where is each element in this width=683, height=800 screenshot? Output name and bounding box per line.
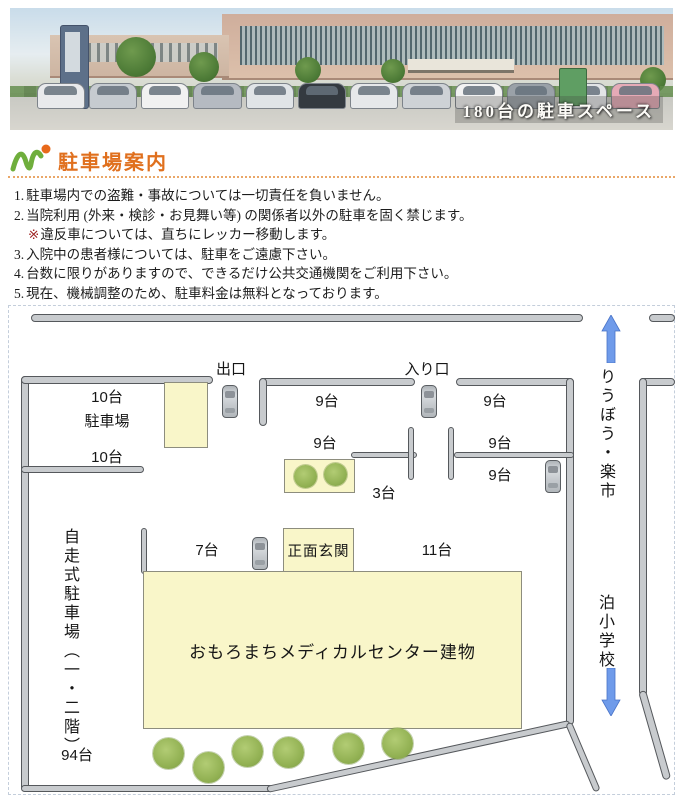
road-spur xyxy=(565,722,600,793)
notice-item: 5.現在、機械調整のため、駐車料金は無料となっております。 xyxy=(14,284,674,304)
count-label: 9台 xyxy=(291,390,363,411)
parking-lot-map: りうぼう・楽市 泊小学校 出口 入り口 10台 駐車場 10台 9台 9台 9台… xyxy=(8,305,675,795)
tree-icon xyxy=(324,463,347,486)
nw-count-top: 10台 xyxy=(71,386,143,407)
car-icon xyxy=(402,83,450,109)
count-label: 9台 xyxy=(289,432,361,453)
nw-lot-divider xyxy=(21,466,144,473)
building-box: おもろまちメディカルセンター建物 xyxy=(143,571,522,729)
nw-lot-label: 駐車場 xyxy=(64,410,150,431)
lot-right-boundary xyxy=(566,378,574,725)
car-icon xyxy=(193,83,241,109)
arrow-up-icon xyxy=(601,315,621,363)
count-label: 3台 xyxy=(359,482,409,503)
car-icon xyxy=(350,83,398,109)
main-entrance-box: 正面玄関 xyxy=(283,528,354,573)
section-header: 駐車場案内 xyxy=(8,138,675,178)
sprout-logo-icon xyxy=(10,142,54,174)
banner-caption: 180台の駐車スペース xyxy=(455,96,663,123)
self-parking-count: 94台 xyxy=(47,744,107,765)
tree-icon xyxy=(273,737,304,768)
page-title: 駐車場案内 xyxy=(58,146,168,175)
exit-label: 出口 xyxy=(209,358,253,379)
top-road-right-segment xyxy=(649,314,675,322)
warning-marker: ※ xyxy=(28,227,39,242)
car-icon xyxy=(252,537,268,570)
notice-item: 3.入院中の患者様については、駐車をご遠慮下さい。 xyxy=(14,245,674,265)
car-icon xyxy=(222,385,238,418)
parking-notice-list: 1.駐車場内での盗難・事故については一切責任を負いません。 2.当院利用 (外来… xyxy=(14,186,674,303)
top-road xyxy=(31,314,583,322)
car-icon xyxy=(545,460,561,493)
notice-item: 2.当院利用 (外来・検診・お見舞い等) の関係者以外の駐車を固く禁じます。 xyxy=(14,206,674,226)
count-label: 7台 xyxy=(177,539,237,560)
lot-left-boundary xyxy=(21,376,29,791)
nw-structure xyxy=(164,382,208,448)
parking-info-page: 180台の駐車スペース 駐車場案内 1.駐車場内での盗難・事故については一切責任… xyxy=(0,0,683,800)
tree-icon xyxy=(295,57,321,83)
planter-box xyxy=(284,459,355,493)
count-label: 11台 xyxy=(401,539,473,560)
tree-icon xyxy=(294,465,317,488)
count-label: 9台 xyxy=(464,464,536,485)
north-wall-left xyxy=(259,378,415,386)
lot-bottom-boundary xyxy=(21,785,273,792)
right-street-edge xyxy=(639,378,647,696)
count-label: 9台 xyxy=(459,390,531,411)
car-icon xyxy=(421,385,437,418)
tree-icon xyxy=(333,733,364,764)
tree-icon xyxy=(232,736,263,767)
nw-count-bottom: 10台 xyxy=(71,446,143,467)
south-destination-label: 泊小学校 xyxy=(592,594,616,670)
tree-icon xyxy=(381,59,405,83)
diagonal-road xyxy=(266,720,570,793)
tree-icon xyxy=(193,752,224,783)
north-destination-label: りうぼう・楽市 xyxy=(593,368,617,501)
notice-item: 1.駐車場内での盗難・事故については一切責任を負いません。 xyxy=(14,186,674,206)
entrance-canopy xyxy=(408,59,514,73)
north-wall-right xyxy=(456,378,574,386)
notice-item: 4.台数に限りがありますので、できるだけ公共交通機関をご利用下さい。 xyxy=(14,264,674,284)
car-icon xyxy=(37,83,85,109)
arrow-down-icon xyxy=(601,668,621,716)
car-icon xyxy=(298,83,346,109)
front-row-post xyxy=(141,528,147,574)
car-icon xyxy=(89,83,137,109)
tree-icon xyxy=(382,728,413,759)
count-label: 9台 xyxy=(464,432,536,453)
tree-icon xyxy=(189,52,219,82)
hospital-photo-banner: 180台の駐車スペース xyxy=(10,8,673,130)
north-wall-left-hook xyxy=(259,378,267,426)
entrance-label: 入り口 xyxy=(397,358,457,379)
notice-sub-item: ※違反車については、直ちにレッカー移動します。 xyxy=(14,225,674,245)
right-street-curve xyxy=(638,690,671,781)
mid-divider-post xyxy=(408,427,414,480)
car-icon xyxy=(141,83,189,109)
self-parking-label: 自走式駐車場（一・二階） xyxy=(57,528,81,756)
tree-icon xyxy=(153,738,184,769)
car-icon xyxy=(246,83,294,109)
